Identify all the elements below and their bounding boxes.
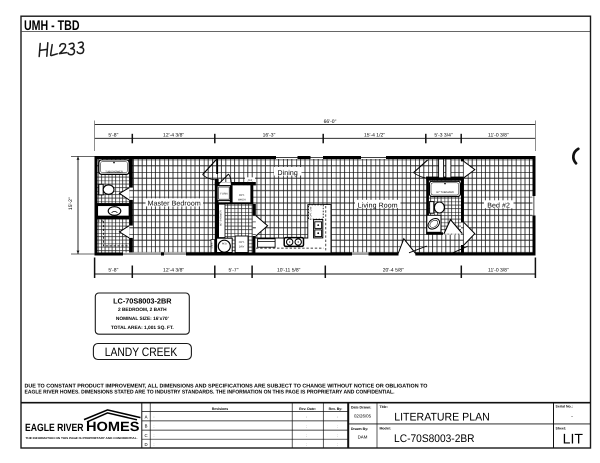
svg-text:EAGLE RIVER HOMES. DIMENSIONS: EAGLE RIVER HOMES. DIMENSIONS STATED ARE… [25,389,395,395]
svg-text:FURN: FURN [220,192,227,195]
svg-text:Date Drawn:: Date Drawn: [351,405,371,409]
svg-text:2 BEDROOM, 2 BATH: 2 BEDROOM, 2 BATH [118,307,167,313]
svg-text:60" SHOWER: 60" SHOWER [220,210,223,226]
svg-text:LINEN: LINEN [211,242,214,248]
svg-text:-: - [571,414,573,420]
svg-text:02/26/05: 02/26/05 [354,414,372,419]
svg-text:11'-0 3/8": 11'-0 3/8" [488,133,509,139]
svg-text:C: C [144,433,147,438]
svg-text:UMH - TBD: UMH - TBD [24,17,80,33]
svg-text::: : [306,415,307,419]
svg-text:CLR: CLR [248,179,253,182]
svg-text:10'-11 5/8": 10'-11 5/8" [277,268,301,274]
svg-text:5'-8": 5'-8" [108,268,118,274]
svg-text:TUB/SHOWER: TUB/SHOWER [105,170,123,173]
svg-text:LC-70S8003-2BR: LC-70S8003-2BR [113,296,172,305]
svg-text:PED: PED [222,243,227,246]
svg-text::: : [154,424,155,428]
svg-text::: : [306,443,307,447]
svg-text::: : [337,415,338,419]
svg-text:OPT.: OPT. [239,241,245,244]
svg-text:12'-4 3/8": 12'-4 3/8" [163,133,184,139]
svg-text:16'-3": 16'-3" [263,133,276,139]
svg-text:TOTAL AREA: 1,001 SQ. FT.: TOTAL AREA: 1,001 SQ. FT. [111,325,174,331]
svg-text:HOMES: HOMES [86,419,140,434]
svg-text:Drawn By:: Drawn By: [351,427,368,431]
svg-text:Title:: Title: [380,405,388,409]
svg-text:5'-7": 5'-7" [229,268,239,274]
svg-text:15'-4 1/2": 15'-4 1/2" [364,133,385,139]
svg-text:Model:: Model: [380,427,391,431]
svg-text:OPT.: OPT. [239,194,245,197]
svg-text:EAGLE RIVER: EAGLE RIVER [25,422,84,434]
svg-text:LANDY CREEK: LANDY CREEK [105,345,178,359]
svg-text:A: A [145,414,148,419]
svg-text:60" TUB/SHWR: 60" TUB/SHWR [436,191,454,194]
svg-text::: : [337,434,338,438]
svg-text:15'-2": 15'-2" [68,197,74,210]
svg-text::: : [154,415,155,419]
svg-text:12'-4 3/8": 12'-4 3/8" [163,268,184,274]
svg-text:Rev. By:: Rev. By: [329,407,343,411]
svg-text:LC-70S8003-2BR: LC-70S8003-2BR [394,433,475,445]
svg-text:DAM: DAM [358,435,368,440]
svg-text:D: D [144,442,147,447]
svg-text:Living Room: Living Room [358,201,398,209]
svg-text:THE INFORMATION ON THIS PAGE I: THE INFORMATION ON THIS PAGE IS PROPRIET… [26,437,138,440]
svg-text::: : [306,434,307,438]
svg-text::: : [154,443,155,447]
svg-text:WASH: WASH [238,198,246,201]
svg-text:66'-0": 66'-0" [324,119,337,125]
svg-text:Rev. Date:: Rev. Date: [299,407,316,411]
svg-text::: : [337,443,338,447]
svg-text:5'-3 3/4": 5'-3 3/4" [434,133,453,139]
svg-text::: : [154,434,155,438]
svg-text:LITERATURE PLAN: LITERATURE PLAN [394,411,490,423]
svg-text:LIT: LIT [563,431,584,447]
svg-text:20'-4 5/8": 20'-4 5/8" [383,268,404,274]
svg-text:Dining: Dining [277,169,297,177]
svg-text:Bed #2: Bed #2 [487,202,510,210]
svg-text:DRY: DRY [239,245,245,248]
svg-text::: : [337,424,338,428]
svg-text:NOMINAL SIZE: 16'x70': NOMINAL SIZE: 16'x70' [116,316,169,322]
svg-text:B: B [145,424,148,429]
svg-text:OPT. D/W: OPT. D/W [310,206,313,217]
svg-text:11'-0 3/8": 11'-0 3/8" [488,268,509,274]
svg-text:Master Bedroom: Master Bedroom [148,200,201,208]
svg-text:Revisions: Revisions [212,407,229,411]
svg-text::: : [306,424,307,428]
svg-text:Serial No.:: Serial No.: [556,405,573,409]
svg-text:5'-8": 5'-8" [108,133,118,139]
